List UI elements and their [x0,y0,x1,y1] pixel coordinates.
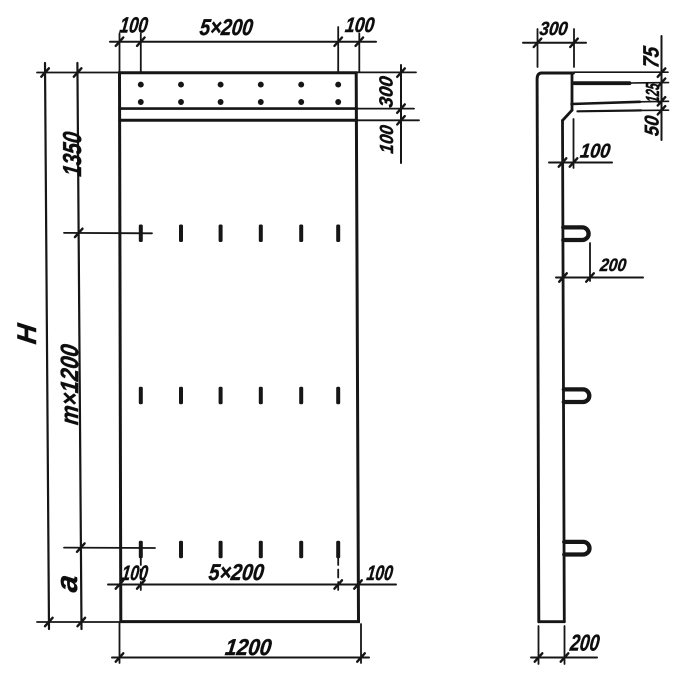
svg-text:75: 75 [639,44,664,69]
svg-text:100: 100 [344,14,376,37]
svg-text:200: 200 [598,255,627,275]
svg-text:100: 100 [120,562,149,585]
svg-text:200: 200 [568,630,601,656]
svg-text:5×200: 5×200 [207,559,265,585]
svg-text:100: 100 [579,141,612,163]
svg-text:1200: 1200 [224,634,273,660]
svg-text:300: 300 [377,75,398,109]
svg-text:1350: 1350 [57,130,87,178]
svg-text:5×200: 5×200 [198,14,254,40]
svg-text:m×1200: m×1200 [56,343,84,426]
svg-text:100: 100 [365,562,394,585]
svg-text:100: 100 [118,13,150,38]
svg-text:125: 125 [643,82,664,104]
svg-text:100: 100 [377,124,398,155]
svg-text:50: 50 [642,114,664,137]
svg-text:300: 300 [538,19,569,40]
